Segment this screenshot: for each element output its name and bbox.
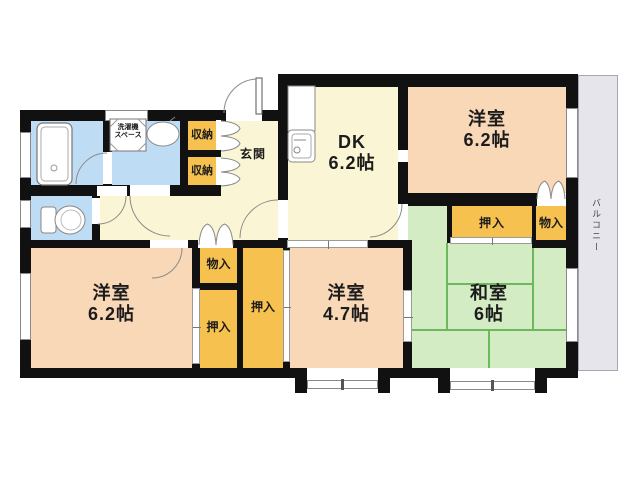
japanese-room-label: 和室 6帖	[412, 283, 566, 324]
entrance-label: 玄関	[227, 148, 279, 162]
dk-name: DK	[300, 132, 404, 153]
laundry-line2: スペース	[110, 132, 146, 140]
dk-door-arc	[240, 200, 278, 238]
oshiire-left-label: 押入	[200, 321, 237, 335]
western-top-label: 洋室 6.2帖	[408, 109, 566, 150]
western-top-name: 洋室	[408, 109, 566, 130]
washbasin-tap	[170, 117, 175, 121]
oshiire-center-label: 押入	[243, 301, 283, 315]
western-center-size: 4.7帖	[290, 304, 403, 325]
monoire-top-label: 物入	[535, 217, 567, 231]
floorplan-canvas: DK 6.2帖 洋室 6.2帖 洋室 6.2帖 洋室 4.7帖 和室 6帖 玄関…	[0, 0, 640, 480]
western-left-name: 洋室	[31, 283, 192, 304]
monoire-mid-bifold-door	[199, 224, 233, 245]
shunou-top-bifold-door	[221, 121, 240, 151]
japanese-room-name: 和室	[412, 283, 566, 304]
kitchen-counter	[288, 86, 315, 131]
shunou-top-label: 収納	[187, 129, 217, 142]
shunou-bottom-bifold-door	[221, 158, 240, 186]
western-left-label: 洋室 6.2帖	[31, 283, 192, 324]
japanese-room-size: 6帖	[412, 304, 566, 325]
washbasin	[147, 122, 179, 146]
balcony-label: バルコニー	[590, 198, 603, 268]
western-top-size: 6.2帖	[408, 130, 566, 151]
entry-door-arc	[224, 79, 256, 113]
dk-label: DK 6.2帖	[300, 132, 404, 173]
entry-door-leaf	[256, 78, 262, 114]
bathroom-door-arc	[76, 153, 107, 184]
western-center-name: 洋室	[290, 283, 403, 304]
western-left-door-arc	[152, 248, 182, 278]
laundry-line1: 洗濯機	[110, 124, 146, 132]
monoire-mid-label: 物入	[200, 258, 237, 272]
oshiire-top-label: 押入	[452, 217, 532, 231]
japanese-door-arc	[370, 204, 402, 237]
fixtures-overlay	[0, 0, 640, 480]
monoire-top-bifold-door	[537, 181, 565, 199]
washroom-door-arc	[130, 196, 170, 236]
dk-size: 6.2帖	[300, 153, 404, 174]
laundry-space-label: 洗濯機 スペース	[110, 124, 146, 140]
western-left-size: 6.2帖	[31, 304, 192, 325]
western-center-label: 洋室 4.7帖	[290, 283, 403, 324]
toilet-tank	[41, 207, 56, 233]
bathtub	[37, 123, 72, 185]
toilet-door-arc	[98, 196, 126, 224]
shunou-bottom-label: 収納	[187, 165, 217, 178]
